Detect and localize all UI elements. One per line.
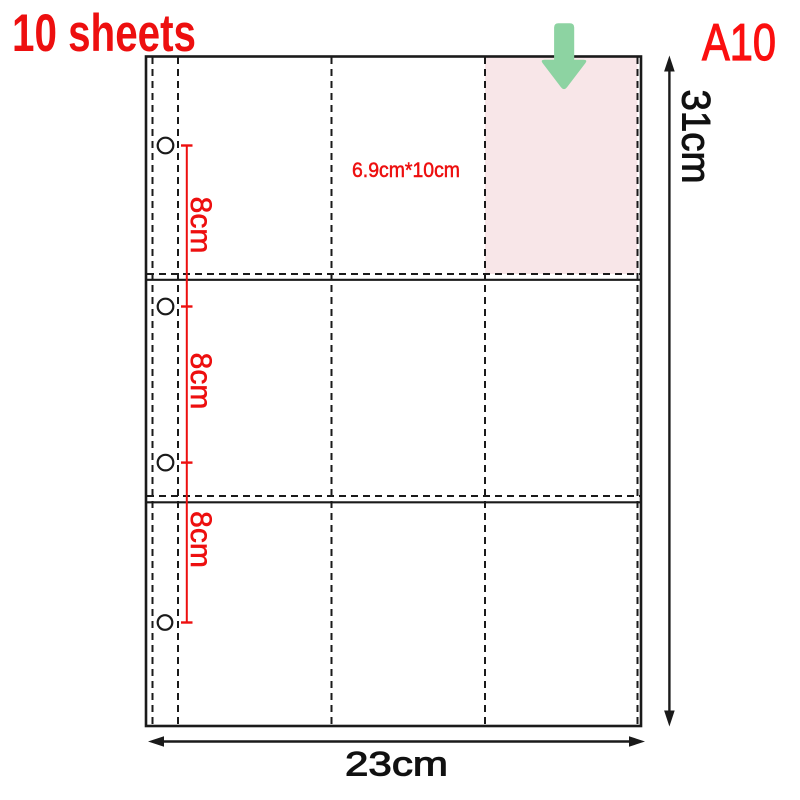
svg-text:8cm: 8cm (184, 353, 217, 410)
svg-text:6.9cm*10cm: 6.9cm*10cm (352, 158, 460, 182)
svg-text:31cm: 31cm (674, 90, 718, 184)
svg-text:8cm: 8cm (184, 511, 217, 568)
svg-text:10 sheets: 10 sheets (12, 4, 196, 63)
svg-text:A10: A10 (702, 14, 776, 72)
svg-text:8cm: 8cm (184, 197, 217, 254)
svg-text:23cm: 23cm (345, 746, 448, 784)
